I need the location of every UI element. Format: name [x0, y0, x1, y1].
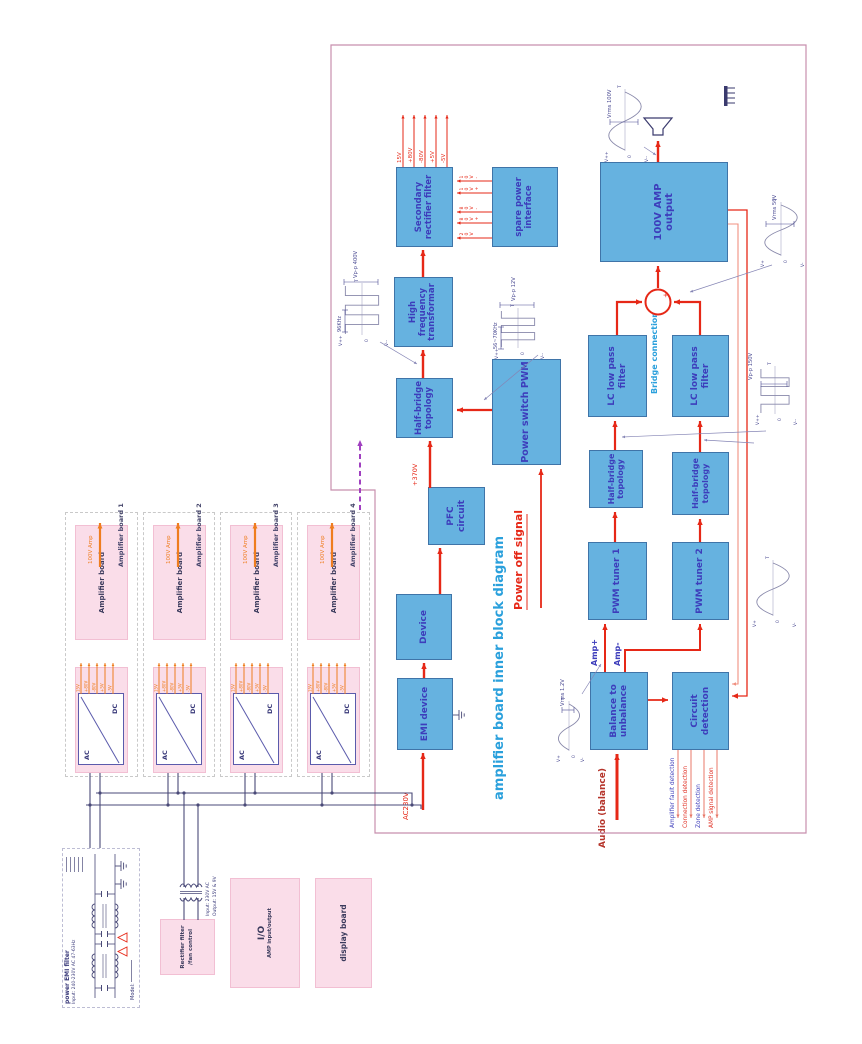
arrow-head: [457, 221, 461, 224]
power-off-signal-label: Power off signal: [512, 510, 525, 610]
group-output-label: 100V Amp: [243, 535, 249, 564]
arrow-head: [457, 236, 461, 239]
connector-line: [690, 265, 772, 292]
arrow-head: [602, 624, 607, 630]
arrow-head: [457, 210, 461, 213]
wave-t-label: T: [354, 279, 360, 283]
junction-dot: [176, 791, 179, 794]
wave-freq-label: 96KHz: [337, 316, 343, 332]
wave-volt-label: Vp-p 400V: [353, 250, 359, 278]
rail-output-label: +5V: [430, 151, 436, 163]
power-emi-filter-title: power EMI filter: [64, 950, 71, 1004]
transformer-output-label: Output: 15V & 9V: [213, 876, 218, 916]
junction-dot: [330, 791, 333, 794]
arrow-head: [732, 682, 736, 686]
connector-line: [674, 302, 700, 335]
audio-balance-label: Audio (balance): [598, 768, 608, 848]
wave-t-label: T: [767, 362, 773, 366]
spare-rail-label: 10V+: [459, 187, 480, 191]
junction-dot: [196, 803, 199, 806]
junction-dot: [98, 791, 101, 794]
spare-rail-label: 10V-: [459, 175, 480, 179]
arrow-head: [655, 141, 660, 147]
arrow-head: [715, 815, 718, 819]
rail-output-label: -5V: [441, 154, 447, 163]
amp-plus-label: Amp+: [590, 639, 599, 666]
ac-dc-converter-symbol: [78, 693, 124, 765]
connector-line: [704, 440, 754, 443]
connector-line: [625, 624, 700, 672]
wave-vplus-label: V++: [338, 335, 344, 346]
wave-zero-label: 0: [520, 352, 526, 355]
block-hft: High frequency transformar: [394, 277, 453, 347]
waveform-pwm: [498, 302, 535, 349]
wave-freq-label: 56~70KHz: [493, 322, 499, 349]
amplifier-board-group-label: Amplifier board 4: [349, 503, 357, 567]
wave-vplus-label: V+: [556, 755, 562, 762]
block-hb2: Half-bridge topology: [672, 452, 729, 515]
waveform-tuner: [757, 560, 789, 616]
detection-label: Zone detection: [696, 784, 702, 828]
block-ampout: 100V AMP output: [600, 162, 728, 262]
wave-vplus-label: V++: [755, 414, 761, 425]
screenshot-root: amplifier board inner block diagram Powe…: [0, 0, 862, 1044]
arrow-head: [357, 440, 362, 446]
wave-vminus-label: V--: [793, 419, 799, 425]
spare-rail-label: 80V-: [459, 206, 480, 210]
ac230v-label: AC230V: [402, 792, 410, 820]
connector-line: [617, 302, 642, 335]
ac-dc-converter-symbol: [310, 693, 356, 765]
amplifier-board-label: Amplifier board: [330, 552, 338, 613]
arrow-head: [697, 421, 702, 427]
ac-dc-converter-symbol: [156, 693, 202, 765]
arrow-head: [401, 115, 404, 119]
arrow-head: [689, 815, 692, 819]
arrow-head: [697, 519, 702, 525]
amplifier-board-label: Amplifier board: [176, 552, 184, 613]
wave-volt-label: Vrms 50V: [772, 194, 778, 220]
wave-zero-label: 0: [571, 755, 577, 758]
arrow-head: [427, 441, 432, 447]
waveform-out100: [609, 89, 641, 151]
arrow-head: [636, 299, 642, 304]
wave-vminus-label: V-: [580, 757, 586, 762]
arrow-head: [538, 469, 543, 475]
display-board-label: display board: [339, 904, 348, 961]
rectifier-fan-control-box: Rectifier filter /fan control: [160, 919, 215, 975]
junction-dot: [253, 791, 256, 794]
block-cdet: Circuit detection: [672, 672, 729, 750]
wave-t-label: T: [773, 198, 779, 202]
junction-dot: [182, 791, 185, 794]
io-subtitle: AMP input/output: [267, 908, 273, 958]
block-lc1: LC low pass filter: [588, 335, 647, 417]
detection-label: AMP signal detection: [709, 767, 715, 828]
junction-dot: [320, 803, 323, 806]
arrow-head: [612, 421, 617, 427]
wave-t-label: T: [617, 85, 623, 89]
wave-vminus-label: V-: [792, 622, 798, 627]
spare-rail-label: 80V+: [459, 217, 480, 221]
arrow-head: [414, 361, 417, 364]
arrow-head: [653, 152, 656, 155]
arrow-head: [614, 754, 619, 760]
wave-zero-label: 0: [783, 260, 789, 263]
group-output-label: 100V Amp: [166, 535, 172, 564]
fan-control-label: /fan control: [188, 925, 195, 968]
arrow-head: [697, 624, 702, 630]
amplifier-board-group-label: Amplifier board 1: [117, 503, 125, 567]
plus-sign: +: [662, 292, 670, 298]
wave-volt-label: Vrms 1.2V: [560, 679, 566, 706]
wave-vplus-label: V+: [752, 620, 758, 627]
detection-label: Connection detection: [683, 766, 689, 828]
arrow-head: [690, 290, 693, 293]
block-pwm1: PWM tuner 1: [588, 542, 647, 620]
wave-volt-label: Vrms 100V: [607, 89, 613, 118]
arrow-head: [445, 115, 448, 119]
wave-zero-label: 0: [775, 620, 781, 623]
block-spare: spare power interface: [492, 167, 558, 247]
amp-minus-label: Amp-: [613, 642, 622, 666]
waveform-out50: [765, 202, 797, 256]
speaker-icon: [644, 118, 672, 135]
transformer-input-label: Input: 230V AC: [206, 882, 211, 916]
arrow-head: [662, 697, 668, 702]
arrow-head: [420, 250, 425, 256]
block-lc2: LC low pass filter: [672, 335, 729, 417]
wave-vplus-label: V++: [604, 151, 610, 162]
arrow-head: [484, 397, 487, 400]
amplifier-board-label: Amplifier board: [98, 552, 106, 613]
wave-volt-label: Vp-p 150V: [748, 352, 754, 380]
wave-zero-label: 0: [627, 155, 633, 158]
block-hb1: Half-bridge topology: [589, 450, 643, 508]
connector-line: [622, 431, 766, 437]
arrow-head: [434, 115, 437, 119]
arrow-head: [612, 512, 617, 518]
detection-label: Amplifier fault detection: [670, 758, 676, 828]
waveform-hft: [342, 279, 379, 335]
arrow-head: [420, 350, 425, 356]
arrow-head: [655, 266, 660, 272]
waveform-bridge_sq: [761, 366, 789, 414]
power-emi-filter-input: Input: 240-230V AC 47-63Hz: [72, 940, 77, 1004]
amplifier-board-label: Amplifier board: [253, 552, 261, 613]
wave-t-label: T: [765, 556, 771, 560]
arrow-head: [457, 179, 461, 182]
arrow-head: [704, 439, 707, 442]
connector-line: [728, 210, 747, 696]
wave-vplus-label: V+: [760, 260, 766, 267]
arrow-head: [421, 663, 426, 669]
arrow-head: [412, 115, 415, 119]
wave-volt-label: Vp-p 12V: [511, 277, 517, 301]
connector-line: [86, 805, 421, 809]
arrow-head: [420, 753, 425, 759]
connector-line: [644, 147, 656, 155]
block-pfc: PFC circuit: [428, 487, 485, 545]
arrow-head: [732, 693, 738, 698]
junction-dot: [88, 803, 91, 806]
arrow-head: [676, 815, 679, 819]
connector-line: [728, 224, 738, 684]
group-output-label: 100V Amp: [320, 535, 326, 564]
arrow-head: [622, 436, 625, 439]
rectifier-filter-label: Rectifier filter: [180, 925, 187, 968]
wave-vminus-label: V-: [800, 262, 806, 267]
block-hb: Half-bridge topology: [396, 378, 453, 438]
arrow-head: [674, 299, 680, 304]
v370-label: +370V: [411, 464, 419, 486]
spare-rail-label: 20V: [459, 232, 475, 236]
block-bal: Balance to unbalance: [590, 672, 648, 750]
block-pwm2: PWM tuner 2: [672, 542, 729, 620]
rail-output-label: 15V: [397, 152, 403, 163]
wave-zero-label: 0: [364, 339, 370, 342]
wave-t-label: T: [510, 304, 516, 308]
amplifier-board-group-label: Amplifier board 2: [195, 503, 203, 567]
terminal-icon: [724, 86, 728, 106]
block-emi: EMI device: [397, 678, 453, 750]
waveform-audio: [558, 701, 579, 751]
transformer-coil: [180, 884, 202, 887]
junction-dot: [243, 803, 246, 806]
transformer-coil: [180, 898, 202, 901]
power-emi-filter-model: Model:: [130, 983, 136, 1000]
junction-dot: [166, 803, 169, 806]
bridge-sum-node: [646, 290, 671, 315]
wave-vminus-label: V--: [384, 340, 390, 346]
bridge-connection-label: Bridge connection: [650, 318, 659, 394]
rail-output-label: +80V: [408, 147, 414, 163]
block-sec: Secondary rectifier filter: [396, 167, 453, 247]
arrow-head: [423, 115, 426, 119]
inner-diagram-title: amplifier board inner block diagram: [492, 536, 507, 800]
junction-dot: [410, 803, 413, 806]
wave-zero-label: 0: [777, 418, 783, 421]
block-pwm: Power switch PWM: [492, 359, 561, 465]
ac-dc-converter-symbol: [233, 693, 279, 765]
display-board-box: display board: [315, 878, 372, 988]
arrow-head: [457, 407, 463, 412]
arrow-head: [702, 815, 705, 819]
arrow-head: [437, 548, 442, 554]
rail-output-label: -80V: [419, 150, 425, 163]
wave-vplus-label: V++: [494, 348, 500, 359]
group-output-label: 100V Amp: [88, 535, 94, 564]
io-amp-box: I/O AMP input/output: [230, 878, 300, 988]
wave-t-label: T: [561, 697, 567, 701]
io-title: I/O: [257, 908, 267, 958]
block-device: Device: [396, 594, 452, 660]
amplifier-board-group-label: Amplifier board 3: [272, 503, 280, 567]
arrow-head: [457, 191, 461, 194]
diagram-canvas: amplifier board inner block diagram Powe…: [0, 0, 862, 1044]
connector-line: [96, 793, 412, 804]
